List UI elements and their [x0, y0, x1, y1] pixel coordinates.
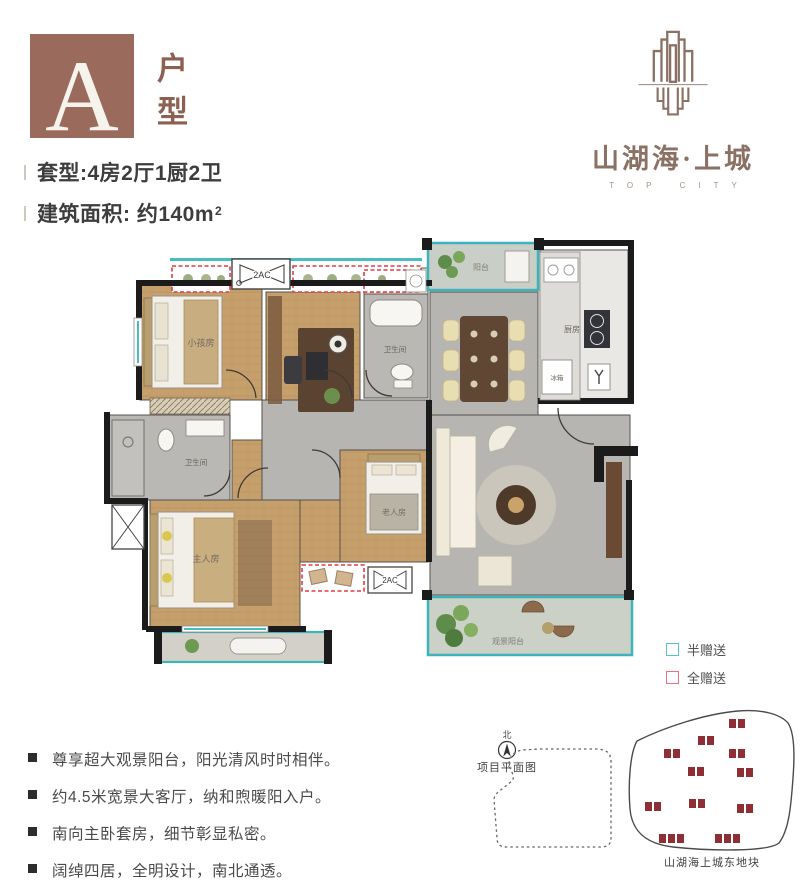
kitchen-label: 厨房: [564, 324, 580, 334]
unit-letter: A: [45, 50, 119, 144]
feature-text: 南向主卧套房，细节彰显私密。: [52, 822, 276, 844]
legend-half-gift: 半赠送: [666, 640, 726, 659]
unit-type-label: 户型: [147, 52, 192, 138]
unit-badge: A: [30, 34, 134, 138]
spec-layout-text: 套型:4房2厅1厨2卫: [37, 157, 222, 187]
spec-area-sup: 2: [215, 204, 222, 218]
floorplan-drawing: 2AC 2AC 小孩房 卫生间 厨房 冰箱 阳台 主人房 老人房 卫生间 观景阳…: [88, 228, 674, 690]
feature-item: 南向主卧套房，细节彰显私密。: [28, 822, 340, 844]
shower-cell: [112, 420, 144, 496]
unit-specs: 套型:4房2厅1厨2卫 建筑面积: 约140m 2: [24, 157, 222, 228]
closet-floor: [300, 500, 340, 562]
flyer-page: A 户型 套型:4房2厅1厨2卫 建筑面积: 约140m 2 山湖海·: [0, 0, 800, 895]
elder-bed-headboard: [368, 454, 420, 462]
elder-room-label: 老人房: [382, 507, 406, 517]
north-compass: 北: [499, 730, 516, 759]
spec-area-text: 建筑面积: 约140m: [37, 198, 214, 228]
laptop: [306, 352, 328, 380]
full-gift-swatch: [666, 671, 679, 684]
feature-text: 尊享超大观景阳台，阳光清风时时相伴。: [52, 748, 340, 770]
north-label: 北: [502, 730, 511, 740]
bathtub: [370, 300, 422, 326]
ottoman: [478, 556, 512, 586]
east-parcel-outline: [629, 711, 794, 850]
square-bullet-icon: [28, 790, 37, 799]
tv-console: [606, 462, 622, 558]
top-balcony-label: 阳台: [473, 262, 489, 272]
vanity: [186, 420, 224, 436]
fridge-label: 冰箱: [551, 373, 565, 382]
desk-chair: [284, 356, 302, 384]
half-gift-label: 半赠送: [687, 640, 726, 659]
siteplan-drawing: 北 项目平面图 山湖海上城东地块: [450, 700, 798, 890]
feature-item: 阔绰四居，全明设计，南北通透。: [28, 859, 340, 881]
washing-machine: [406, 270, 426, 292]
kitchen-sink: [544, 258, 578, 282]
view-balcony-label: 观景阳台: [492, 636, 524, 646]
spec-layout: 套型:4房2厅1厨2卫: [24, 157, 222, 187]
feature-list: 尊享超大观景阳台，阳光清风时时相伴。 约4.5米宽景大客厅，纳和煦暖阳入户。 南…: [28, 748, 340, 881]
toilet-master: [158, 429, 174, 451]
ac-bottom-label: 2AC: [382, 576, 398, 585]
tick-divider: [24, 165, 26, 180]
half-gift-swatch: [666, 643, 679, 656]
full-gift-label: 全赠送: [687, 668, 726, 687]
east-parcel-label: 山湖海上城东地块: [664, 855, 760, 869]
feature-text: 阔绰四居，全明设计，南北通透。: [52, 859, 292, 881]
brand-logo: 山湖海·上城 TOP CITY: [553, 26, 793, 190]
public-bath-label: 卫生间: [384, 344, 407, 354]
flowerbox-rail: [170, 258, 422, 261]
kids-bed-headboard: [144, 298, 152, 386]
legend-full-gift: 全赠送: [666, 668, 726, 687]
feature-item: 尊享超大观景阳台，阳光清风时时相伴。: [28, 748, 340, 770]
brand-name: 山湖海·上城: [553, 137, 793, 176]
master-room-label: 主人房: [192, 553, 219, 564]
square-bullet-icon: [28, 864, 37, 873]
tick-divider: [24, 206, 26, 221]
dining-table: [460, 316, 508, 402]
ac-box-left: [112, 505, 144, 549]
sofa-seat: [450, 436, 476, 548]
ac-top-label: 2AC: [253, 270, 271, 280]
ac-box-top: 2AC: [232, 259, 290, 289]
kids-room-label: 小孩房: [187, 337, 214, 348]
square-bullet-icon: [28, 753, 37, 762]
master-bed-headboard: [150, 514, 158, 606]
brand-subtitle: TOP CITY: [553, 181, 793, 190]
wardrobe-hatch: [150, 398, 230, 414]
spec-area: 建筑面积: 约140m 2: [24, 198, 222, 228]
desk-plant: [324, 388, 340, 404]
sofa-back: [436, 428, 450, 556]
feature-text: 约4.5米宽景大客厅，纳和煦暖阳入户。: [52, 785, 331, 807]
feature-item: 约4.5米宽景大客厅，纳和煦暖阳入户。: [28, 785, 340, 807]
ac-box-bottom: 2AC: [368, 567, 412, 593]
siteplan-title: 项目平面图: [477, 761, 537, 774]
stove: [584, 310, 610, 348]
master-rug: [238, 520, 272, 606]
toilet: [391, 364, 413, 380]
square-bullet-icon: [28, 827, 37, 836]
master-bath-label: 卫生间: [185, 457, 208, 467]
artdeco-tower-icon: [625, 26, 721, 128]
gift-legend: 半赠送 全赠送: [666, 640, 726, 687]
study-bookshelf: [268, 296, 282, 404]
